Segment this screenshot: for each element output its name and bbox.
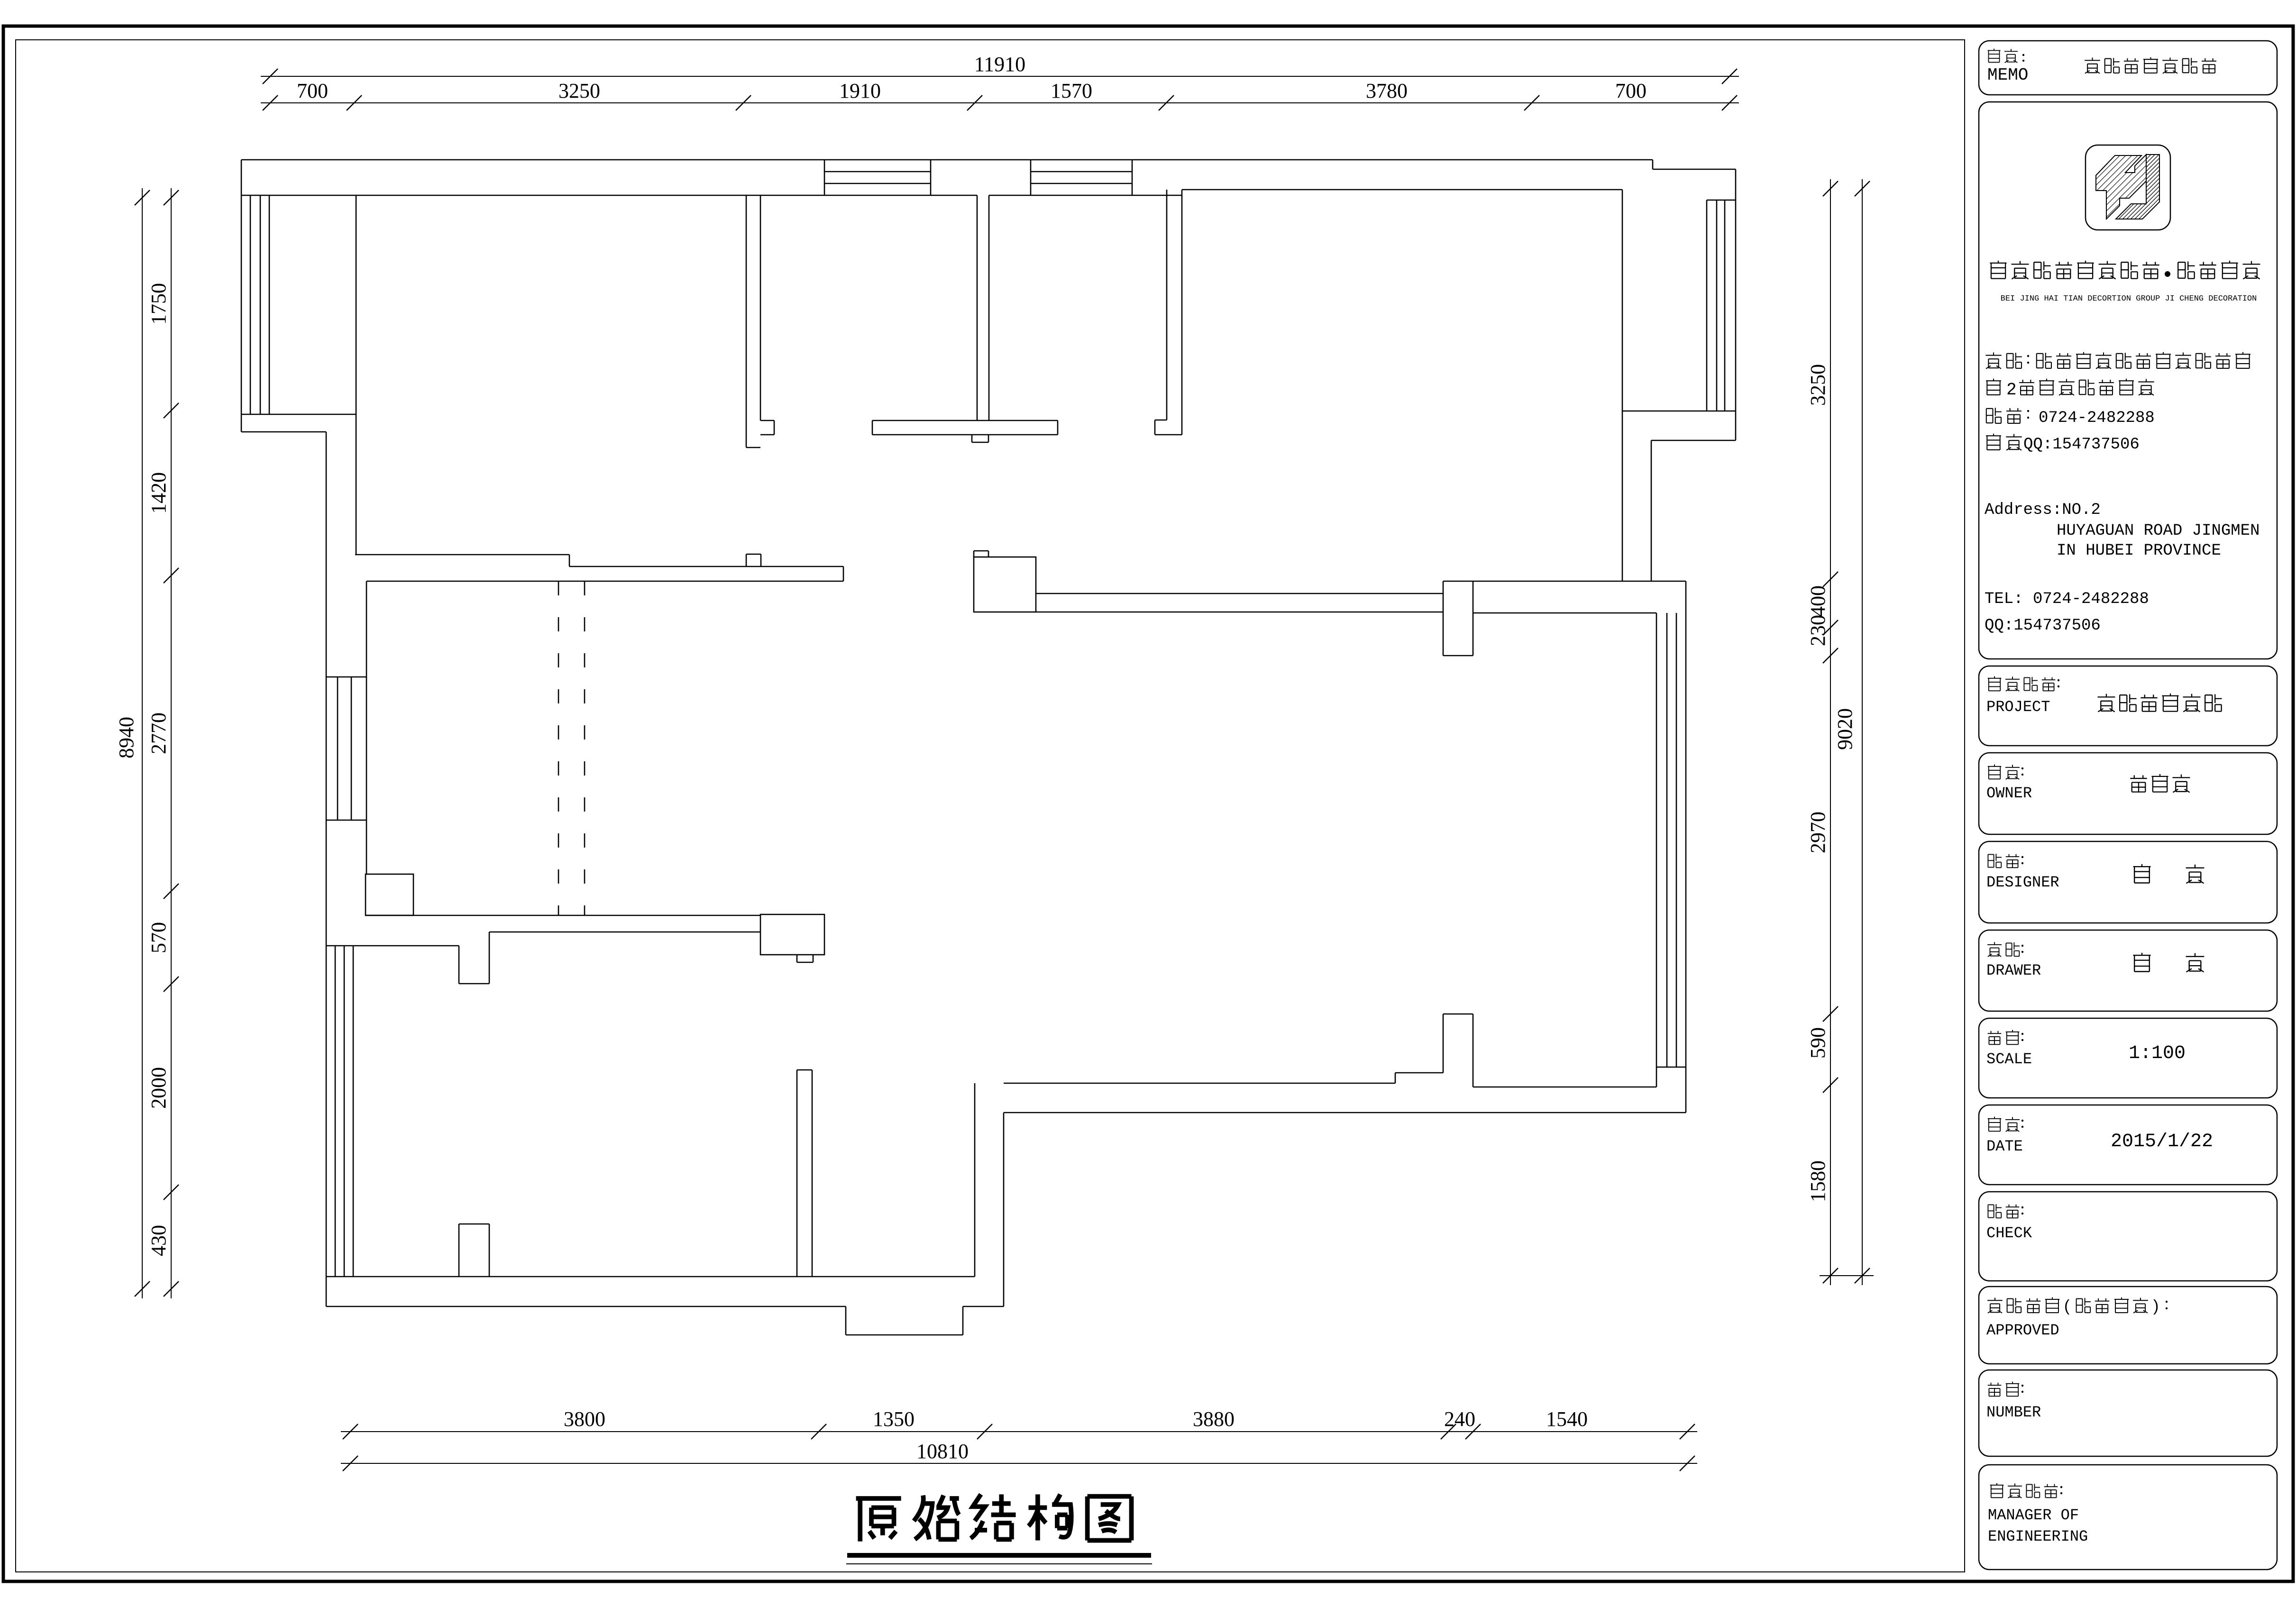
- svg-text:2770: 2770: [147, 712, 170, 754]
- svg-text:MANAGER OF: MANAGER OF: [1988, 1507, 2079, 1524]
- svg-text:3800: 3800: [564, 1407, 605, 1431]
- svg-text:8940: 8940: [115, 717, 138, 758]
- svg-text:1580: 1580: [1806, 1160, 1829, 1202]
- svg-text:240: 240: [1444, 1407, 1475, 1431]
- svg-text:CHECK: CHECK: [1986, 1224, 2032, 1242]
- svg-text:TEL: 0724-2482288: TEL: 0724-2482288: [1985, 590, 2149, 608]
- svg-text:430: 430: [147, 1225, 170, 1256]
- svg-text:DATE: DATE: [1986, 1138, 2023, 1155]
- svg-text:APPROVED: APPROVED: [1986, 1322, 2059, 1339]
- svg-text:BEI JING HAI TIAN DECORTION GR: BEI JING HAI TIAN DECORTION GROUP JI CHE…: [2001, 294, 2257, 303]
- svg-text:SCALE: SCALE: [1986, 1050, 2032, 1068]
- svg-text:HUYAGUAN ROAD JINGMEN: HUYAGUAN ROAD JINGMEN: [2057, 522, 2259, 540]
- svg-text:2970: 2970: [1806, 812, 1829, 853]
- svg-text:700: 700: [1615, 79, 1647, 102]
- svg-text:2: 2: [2006, 380, 2017, 400]
- svg-text:1350: 1350: [873, 1407, 915, 1431]
- svg-text:3250: 3250: [1806, 364, 1829, 406]
- svg-text:11910: 11910: [974, 53, 1025, 76]
- svg-text:Address:NO.2: Address:NO.2: [1985, 501, 2101, 519]
- svg-text:): ): [2153, 1297, 2159, 1315]
- svg-text:QQ:154737506: QQ:154737506: [2023, 436, 2140, 454]
- svg-text:1420: 1420: [147, 472, 170, 514]
- svg-text:9020: 9020: [1833, 708, 1857, 750]
- svg-text:IN HUBEI PROVINCE: IN HUBEI PROVINCE: [2057, 542, 2221, 560]
- svg-text:QQ:154737506: QQ:154737506: [1985, 617, 2101, 635]
- svg-text:2015/1/22: 2015/1/22: [2111, 1131, 2213, 1152]
- svg-text:570: 570: [147, 922, 170, 953]
- svg-text:230: 230: [1806, 615, 1829, 646]
- svg-text:10810: 10810: [916, 1440, 969, 1463]
- svg-text:DESIGNER: DESIGNER: [1986, 874, 2059, 891]
- svg-text:OWNER: OWNER: [1986, 785, 2032, 802]
- svg-text:MEMO: MEMO: [1987, 65, 2028, 85]
- svg-text:3880: 3880: [1193, 1407, 1235, 1431]
- svg-text:PROJECT: PROJECT: [1986, 698, 2050, 716]
- svg-text:1570: 1570: [1051, 79, 1092, 102]
- svg-text:2000: 2000: [147, 1067, 170, 1109]
- svg-text:NUMBER: NUMBER: [1986, 1404, 2041, 1421]
- svg-text:3780: 3780: [1366, 79, 1408, 102]
- svg-text:1910: 1910: [839, 79, 881, 102]
- svg-text:0724-2482288: 0724-2482288: [2039, 409, 2155, 427]
- svg-text:1:100: 1:100: [2129, 1043, 2186, 1064]
- svg-text:590: 590: [1806, 1027, 1829, 1059]
- svg-text:1540: 1540: [1546, 1407, 1588, 1431]
- svg-text:ENGINEERING: ENGINEERING: [1988, 1528, 2088, 1545]
- svg-text:400: 400: [1806, 585, 1829, 617]
- svg-text:1750: 1750: [147, 283, 170, 325]
- svg-text:3250: 3250: [558, 79, 600, 102]
- svg-text:DRAWER: DRAWER: [1986, 962, 2041, 979]
- svg-text:700: 700: [297, 79, 328, 102]
- svg-text:(: (: [2064, 1297, 2070, 1315]
